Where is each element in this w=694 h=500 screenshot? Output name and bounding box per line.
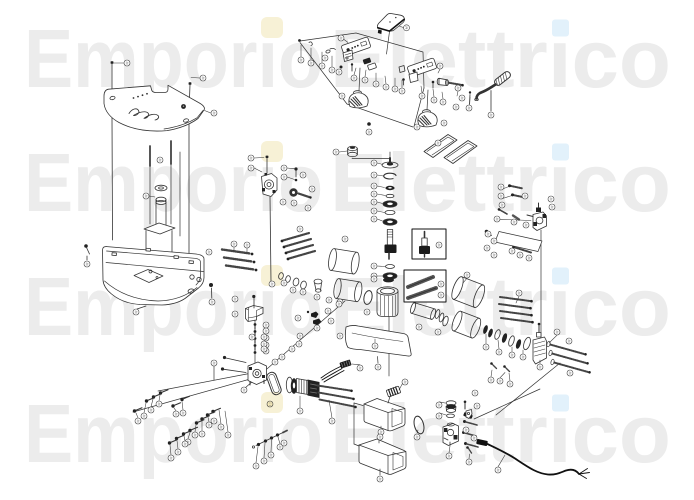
svg-text:Elettrıco: Elettrıco — [330, 137, 671, 229]
